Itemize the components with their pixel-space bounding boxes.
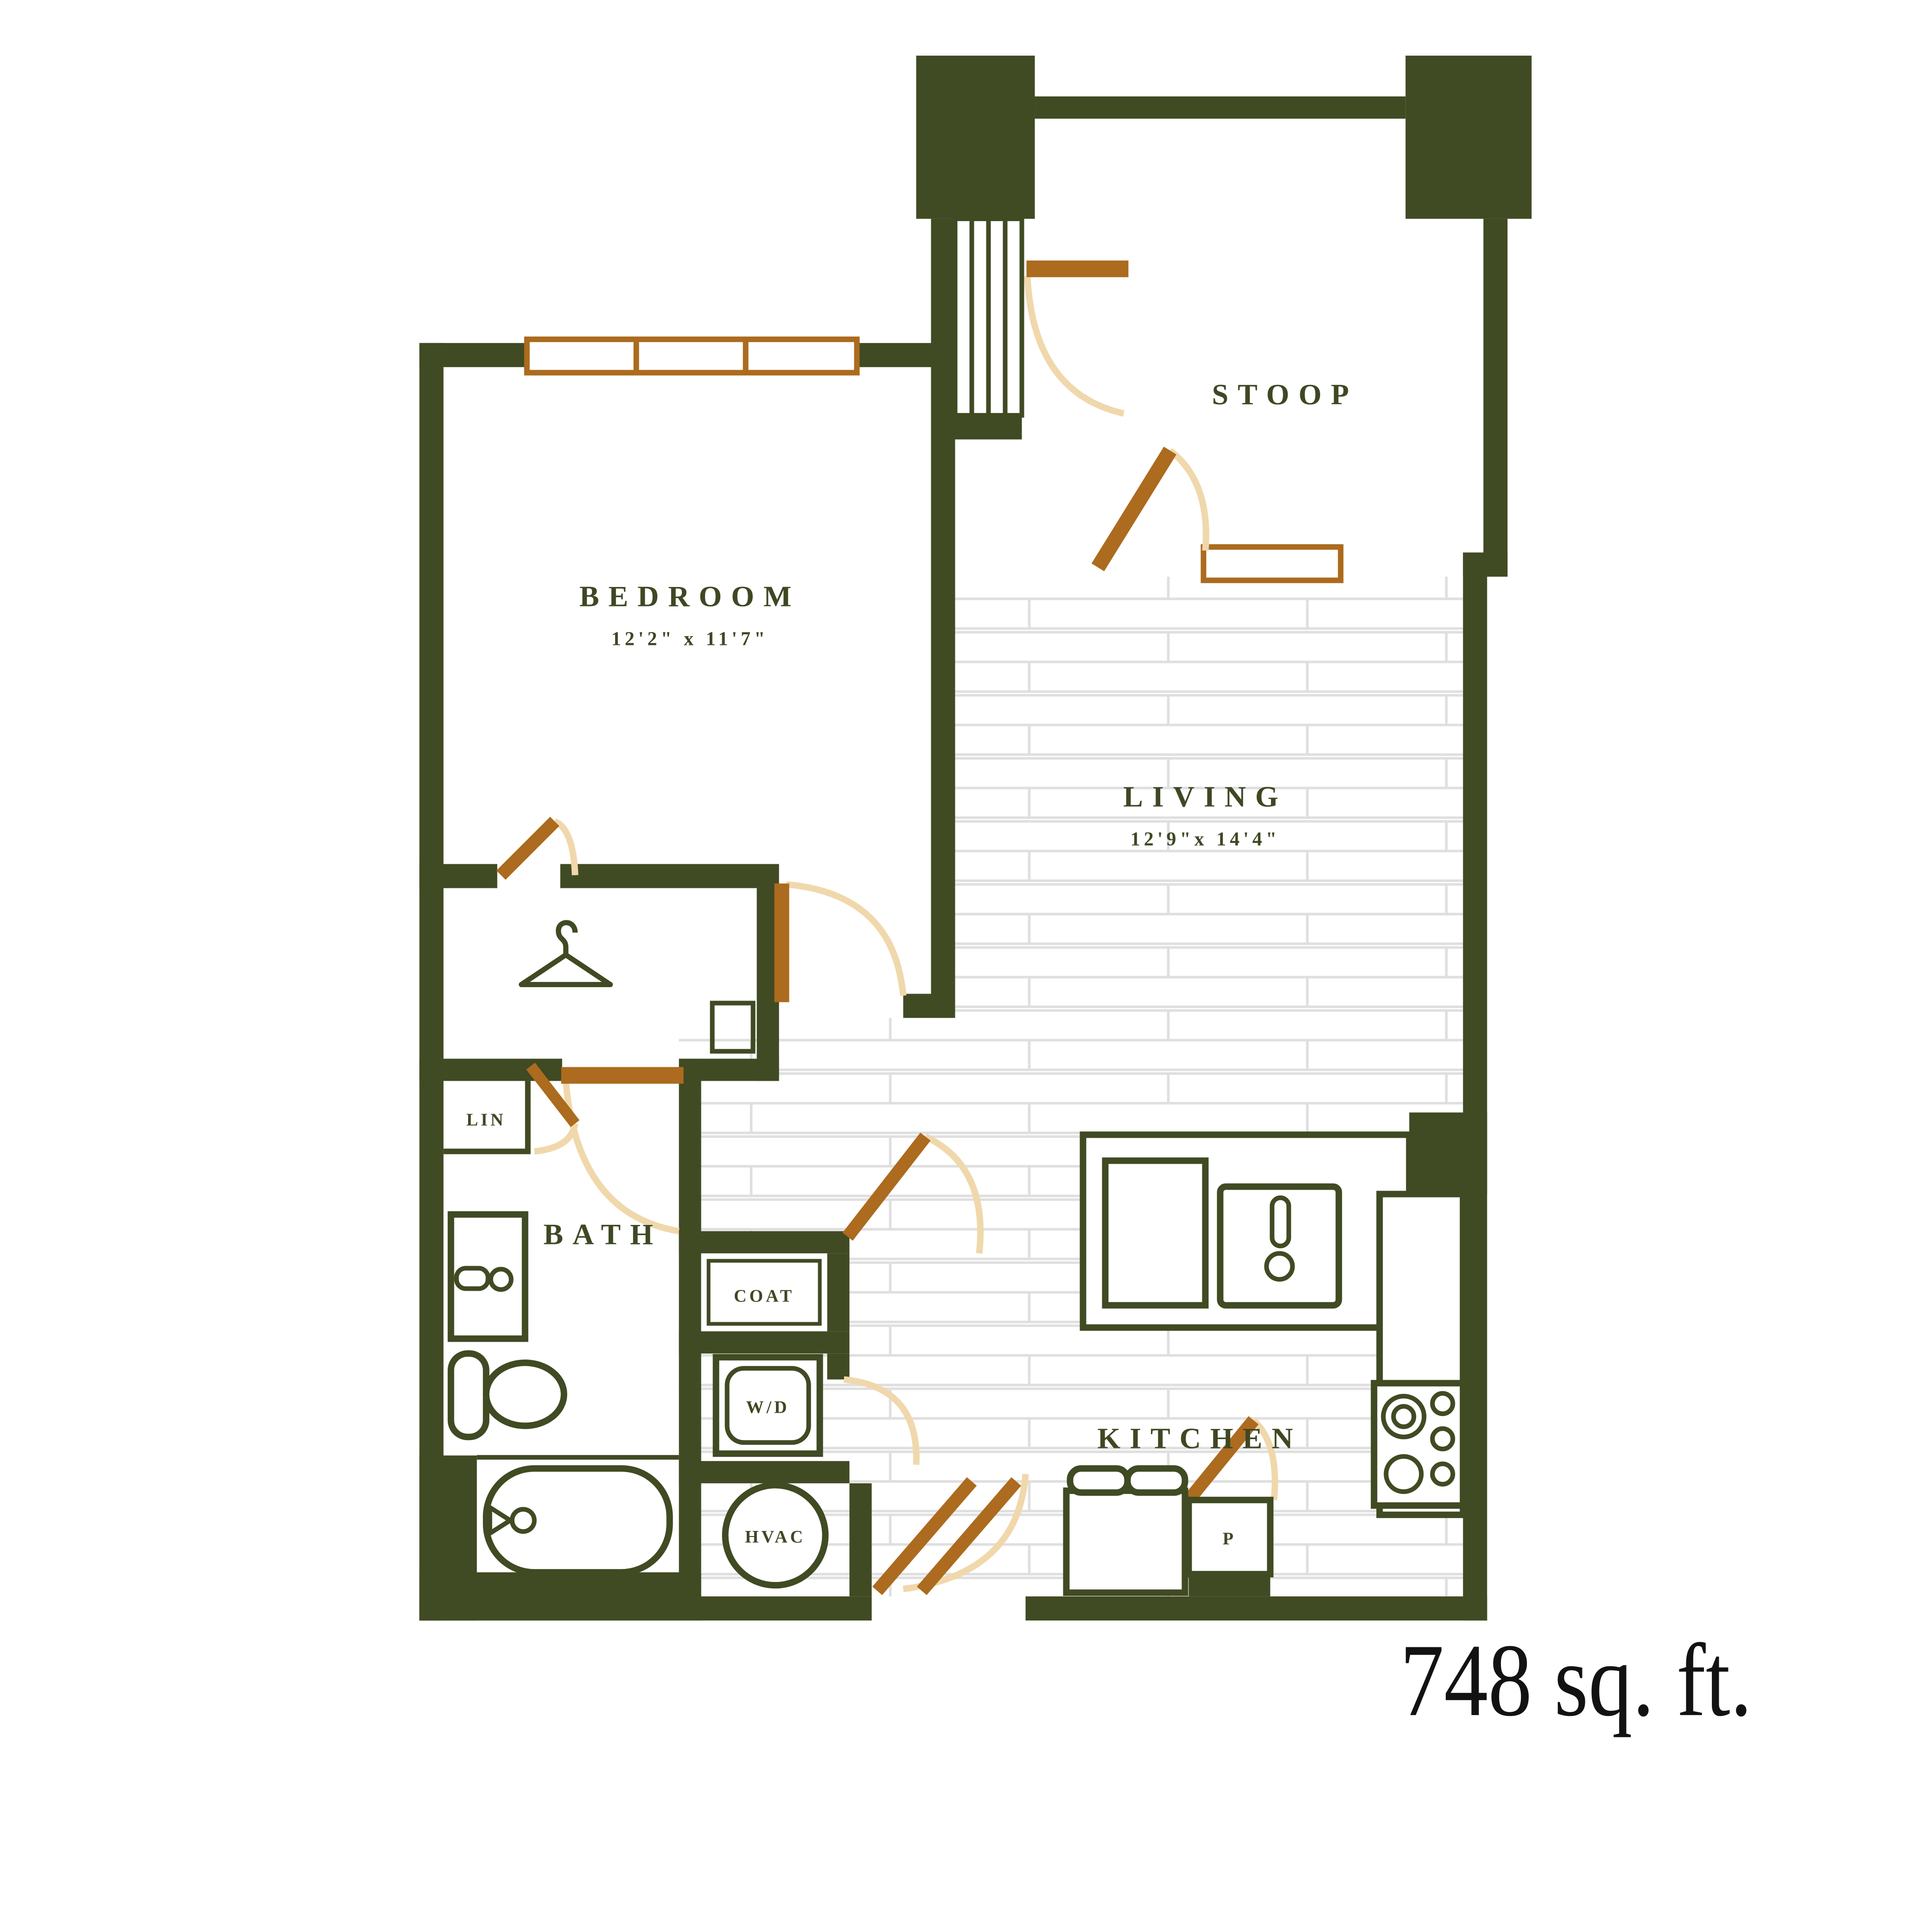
pantry-base xyxy=(1188,1574,1270,1596)
coat-top-wall xyxy=(679,1231,849,1253)
hall-door-stub xyxy=(903,994,955,1018)
stairs xyxy=(955,219,1022,415)
bedroom-window xyxy=(527,339,857,373)
living-dims: 12'9"x 14'4" xyxy=(1130,829,1280,850)
kitchen-label: KITCHEN xyxy=(1097,1422,1302,1454)
bath-label: BATH xyxy=(543,1218,662,1250)
fridge-door-left xyxy=(1070,1468,1127,1492)
floor-plan: STOOP BEDROOM 12'2" x 11'7" LIVING 12'9"… xyxy=(0,0,1932,1932)
kitchen-post xyxy=(1409,1112,1487,1194)
hvac-label: HVAC xyxy=(745,1527,806,1547)
pantry-label: P xyxy=(1222,1529,1236,1549)
closet-top-wall-right xyxy=(560,864,779,888)
stair-stub-wall xyxy=(955,415,1022,440)
left-wall xyxy=(419,343,443,1620)
bottom-wall-right xyxy=(1025,1596,1487,1620)
toilet-tank xyxy=(451,1353,486,1437)
linen-label: LIN xyxy=(466,1110,506,1129)
stoop-right-wall xyxy=(1483,219,1507,577)
post-top-right xyxy=(1405,56,1532,219)
floor-plan-page: STOOP BEDROOM 12'2" x 11'7" LIVING 12'9"… xyxy=(0,0,1932,1932)
stoop-top-wall xyxy=(1035,96,1405,119)
stoop-window xyxy=(1203,547,1341,580)
stair-door-leaf xyxy=(1027,261,1127,276)
wd-hvac-divider xyxy=(679,1461,849,1483)
closet-top-wall-left xyxy=(419,864,497,888)
post-top-left xyxy=(916,56,1035,219)
dishwasher xyxy=(1105,1160,1205,1305)
hall-door-leaf xyxy=(775,885,788,1001)
bath-right-wall xyxy=(679,1058,701,1596)
bedroom-dims: 12'2" x 11'7" xyxy=(611,629,768,650)
hvac-right-wall xyxy=(849,1483,871,1596)
coat-bottom-wall xyxy=(679,1331,849,1353)
stoop-label: STOOP xyxy=(1212,378,1358,411)
wd-door-stub xyxy=(827,1353,849,1379)
east-wall xyxy=(1463,553,1487,1620)
coat-label: COAT xyxy=(734,1286,794,1306)
area-label: 748 sq. ft. xyxy=(1400,1623,1752,1738)
refrigerator xyxy=(1066,1491,1185,1593)
bedroom-label: BEDROOM xyxy=(579,580,801,613)
bath-bottom-wall xyxy=(419,1572,701,1620)
fridge-door-right xyxy=(1127,1468,1185,1492)
bath-door-leaf xyxy=(562,1068,682,1083)
wd-label: W/D xyxy=(746,1397,789,1417)
coat-right-wall xyxy=(827,1253,849,1331)
toilet-bowl xyxy=(486,1363,564,1426)
living-label: LIVING xyxy=(1123,780,1288,813)
bedroom-right-wall xyxy=(931,219,955,1018)
